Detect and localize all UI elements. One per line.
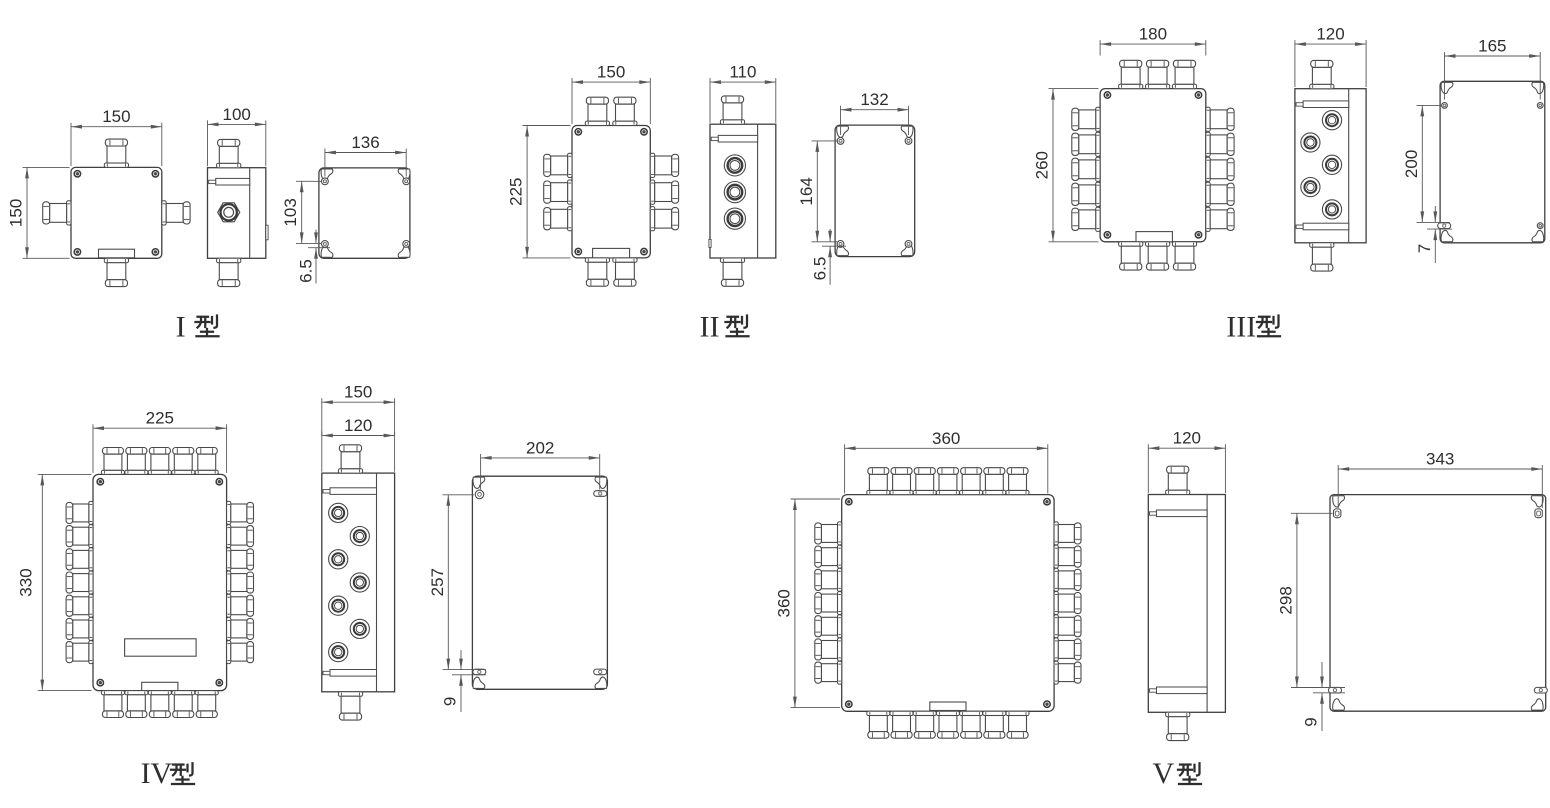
svg-text:298: 298 xyxy=(1276,586,1295,614)
svg-text:260: 260 xyxy=(1033,151,1052,179)
svg-text:6.5: 6.5 xyxy=(811,257,830,281)
svg-text:360: 360 xyxy=(932,429,960,448)
svg-text:343: 343 xyxy=(1426,450,1454,469)
svg-text:150: 150 xyxy=(7,199,26,227)
svg-text:150: 150 xyxy=(597,63,625,82)
svg-text:IV: IV xyxy=(141,757,173,790)
svg-text:120: 120 xyxy=(1173,429,1201,448)
svg-text:202: 202 xyxy=(526,438,554,457)
svg-text:II: II xyxy=(700,311,720,344)
svg-text:150: 150 xyxy=(102,107,130,126)
svg-text:150: 150 xyxy=(344,383,372,402)
svg-text:257: 257 xyxy=(428,568,447,596)
svg-text:9: 9 xyxy=(1302,717,1321,726)
svg-text:110: 110 xyxy=(729,63,756,82)
svg-text:100: 100 xyxy=(223,105,251,124)
svg-text:330: 330 xyxy=(17,568,36,596)
svg-text:120: 120 xyxy=(1316,25,1344,44)
svg-text:200: 200 xyxy=(1402,150,1421,178)
svg-text:103: 103 xyxy=(281,198,300,226)
svg-text:9: 9 xyxy=(440,697,459,706)
svg-text:III: III xyxy=(1226,311,1256,344)
svg-text:165: 165 xyxy=(1478,37,1506,56)
svg-text:I: I xyxy=(176,311,186,344)
svg-text:225: 225 xyxy=(146,409,174,428)
svg-text:180: 180 xyxy=(1139,25,1167,44)
svg-text:6.5: 6.5 xyxy=(297,259,316,283)
svg-text:7: 7 xyxy=(1415,244,1434,253)
svg-text:164: 164 xyxy=(797,177,816,205)
svg-text:120: 120 xyxy=(344,416,372,435)
svg-text:225: 225 xyxy=(507,178,526,206)
svg-text:132: 132 xyxy=(860,90,888,109)
svg-text:136: 136 xyxy=(351,133,379,152)
svg-text:V: V xyxy=(1152,757,1174,790)
svg-text:360: 360 xyxy=(774,589,793,617)
